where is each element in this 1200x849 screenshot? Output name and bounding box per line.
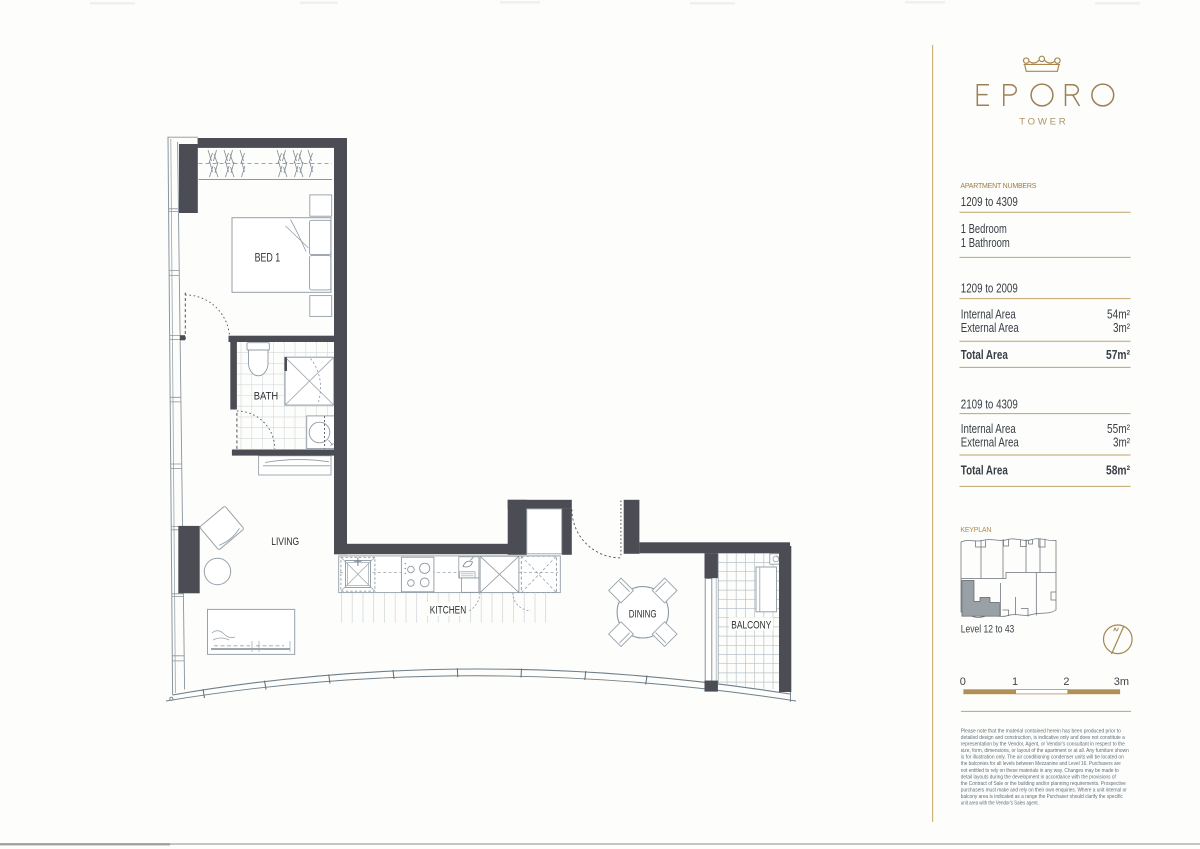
svg-text:BED 1: BED 1	[255, 251, 281, 264]
svg-text:55m²: 55m²	[1107, 422, 1130, 436]
svg-text:Level 12 to 43: Level 12 to 43	[961, 623, 1015, 635]
svg-text:detail layouts during the deve: detail layouts during the development in…	[961, 774, 1116, 780]
svg-text:LIVING: LIVING	[271, 536, 299, 548]
svg-text:3m: 3m	[1114, 676, 1129, 688]
svg-text:Internal Area: Internal Area	[961, 422, 1016, 436]
svg-text:1 Bathroom: 1 Bathroom	[961, 236, 1010, 250]
svg-text:representation by the Vendor,: representation by the Vendor, Agent, or …	[961, 742, 1125, 748]
svg-text:KEYPLAN: KEYPLAN	[960, 527, 991, 534]
svg-text:BATH: BATH	[254, 391, 278, 403]
svg-text:58m²: 58m²	[1106, 464, 1130, 478]
svg-text:Total Area: Total Area	[961, 348, 1009, 362]
svg-text:2: 2	[1063, 676, 1069, 688]
svg-text:57m²: 57m²	[1106, 348, 1130, 362]
svg-text:not entitled to rely on these: not entitled to rely on these materials …	[961, 768, 1119, 774]
svg-text:balcony area is indicated as a: balcony area is indicated as a range the…	[961, 794, 1123, 800]
svg-text:1: 1	[1012, 676, 1018, 688]
svg-text:1209 to 2009: 1209 to 2009	[961, 282, 1018, 296]
svg-text:is for illustration only. The: is for illustration only. The air condit…	[961, 755, 1124, 761]
svg-text:BALCONY: BALCONY	[731, 619, 772, 631]
svg-text:1 Bedroom: 1 Bedroom	[961, 222, 1007, 236]
svg-text:1209 to 4309: 1209 to 4309	[961, 195, 1018, 209]
svg-text:External Area: External Area	[961, 436, 1019, 450]
svg-text:2109 to 4309: 2109 to 4309	[961, 397, 1018, 411]
svg-text:External Area: External Area	[961, 321, 1019, 335]
svg-text:3m²: 3m²	[1113, 436, 1130, 450]
svg-text:Internal Area: Internal Area	[961, 308, 1016, 322]
svg-text:0: 0	[960, 676, 966, 688]
svg-text:the balconies for all levels b: the balconies for all levels between Mez…	[961, 761, 1121, 767]
svg-text:the Contract of Sale or the bu: the Contract of Sale or the building and…	[961, 781, 1126, 787]
svg-text:TOWER: TOWER	[1019, 116, 1066, 127]
svg-text:3m²: 3m²	[1113, 321, 1130, 335]
svg-text:purchasers must make and rely: purchasers must make and rely on their o…	[961, 788, 1127, 794]
svg-text:size, form, dimensions, or lay: size, form, dimensions, or layout of the…	[961, 748, 1129, 754]
svg-text:DINING: DINING	[629, 609, 657, 621]
svg-text:Total Area: Total Area	[961, 464, 1009, 478]
svg-text:54m²: 54m²	[1107, 308, 1130, 322]
svg-text:APARTMENT NUMBERS: APARTMENT NUMBERS	[960, 183, 1036, 190]
svg-text:detailed design and constructi: detailed design and construction, is ind…	[961, 735, 1126, 741]
svg-text:KITCHEN: KITCHEN	[430, 605, 466, 617]
svg-text:unit area with the Vendor's Sa: unit area with the Vendor's Sales agent.	[961, 801, 1039, 807]
svg-text:Please note that the material: Please note that the material contained …	[961, 728, 1121, 734]
